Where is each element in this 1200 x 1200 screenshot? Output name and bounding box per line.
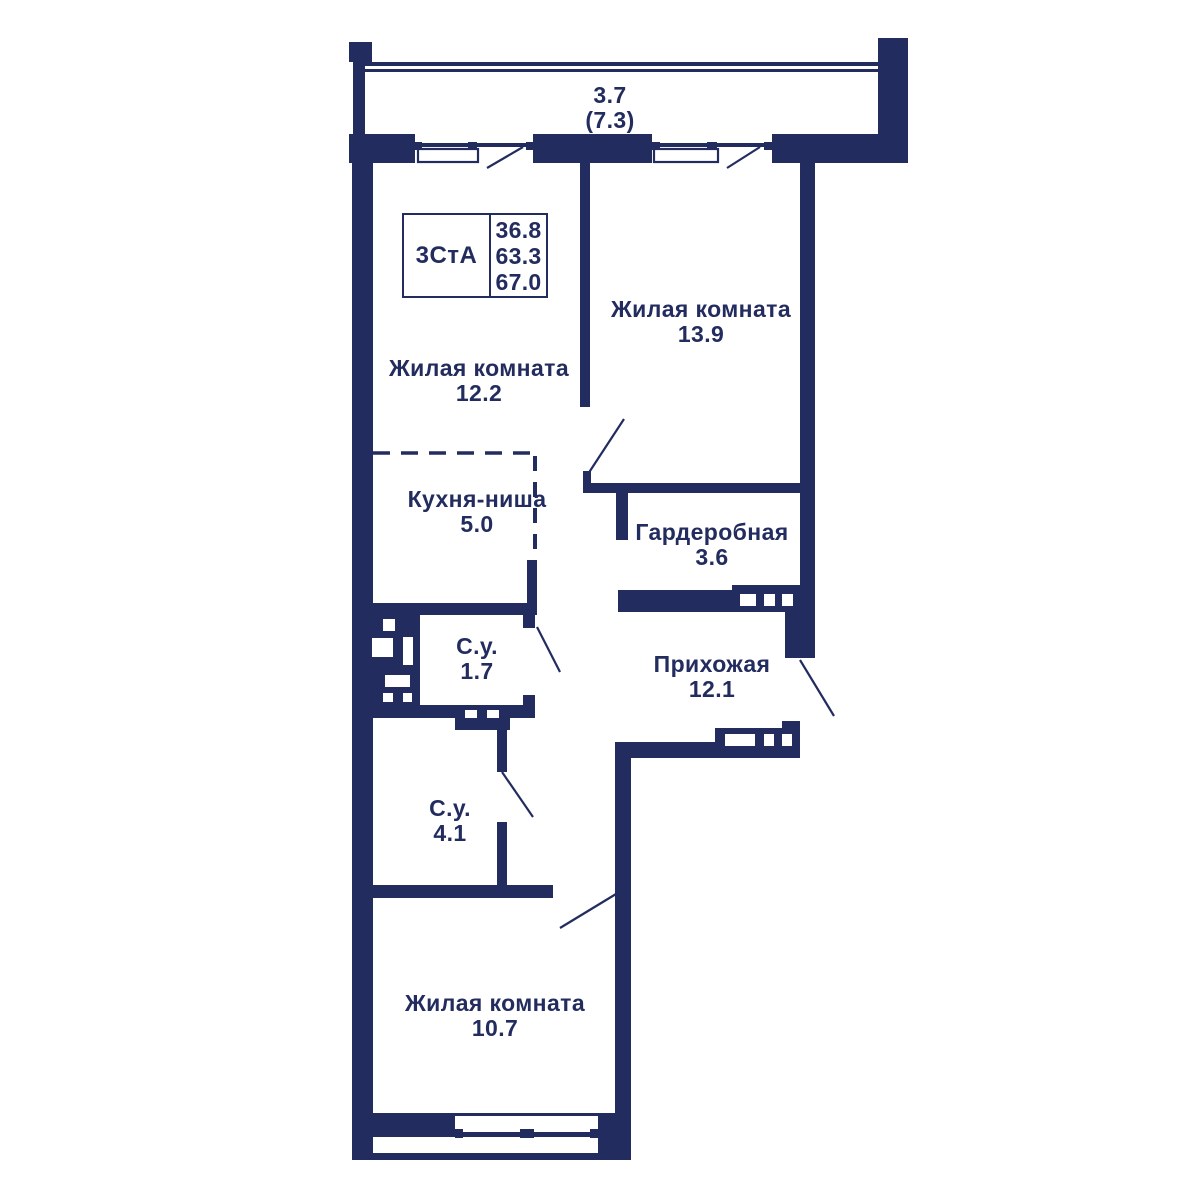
room-name: Прихожая [654, 652, 771, 677]
apartment-areas: 36.8 63.3 67.0 [489, 215, 546, 296]
room-label-living-13-9: Жилая комната 13.9 [611, 297, 791, 347]
room-label-bathroom-big: С.у. 4.1 [429, 796, 471, 846]
floorplan-drawing [0, 0, 1200, 1200]
area-main-value: 63.3 [496, 243, 542, 269]
room-label-wardrobe: Гардеробная 3.6 [635, 520, 788, 570]
room-label-living-10-7: Жилая комната 10.7 [405, 991, 585, 1041]
room-area: 12.1 [654, 677, 771, 702]
room-area: 10.7 [405, 1016, 585, 1041]
room-name: С.у. [429, 796, 471, 821]
room-area: 4.1 [429, 821, 471, 846]
area-total-value: 67.0 [496, 269, 542, 295]
room-name: Жилая комната [389, 356, 569, 381]
room-area: 13.9 [611, 322, 791, 347]
balcony-area: 3.7 [585, 83, 634, 108]
balcony-area-total: (7.3) [585, 108, 634, 133]
room-label-kitchen-niche: Кухня-ниша 5.0 [408, 487, 547, 537]
room-area: 1.7 [456, 659, 498, 684]
room-name: Жилая комната [405, 991, 585, 1016]
apartment-info-box: 3СтА 36.8 63.3 67.0 [402, 213, 548, 298]
room-area: 3.6 [635, 545, 788, 570]
room-area: 5.0 [408, 512, 547, 537]
room-label-hallway: Прихожая 12.1 [654, 652, 771, 702]
room-label-living-12-2: Жилая комната 12.2 [389, 356, 569, 406]
apartment-type-label: 3СтА [404, 215, 489, 296]
room-name: Жилая комната [611, 297, 791, 322]
room-name: Кухня-ниша [408, 487, 547, 512]
floorplan-canvas: 3СтА 36.8 63.3 67.0 3.7 (7.3) Жилая комн… [0, 0, 1200, 1200]
room-area: 12.2 [389, 381, 569, 406]
room-name: С.у. [456, 634, 498, 659]
room-label-bathroom-small: С.у. 1.7 [456, 634, 498, 684]
room-name: Гардеробная [635, 520, 788, 545]
balcony-label: 3.7 (7.3) [585, 83, 634, 133]
area-living-value: 36.8 [496, 217, 542, 243]
